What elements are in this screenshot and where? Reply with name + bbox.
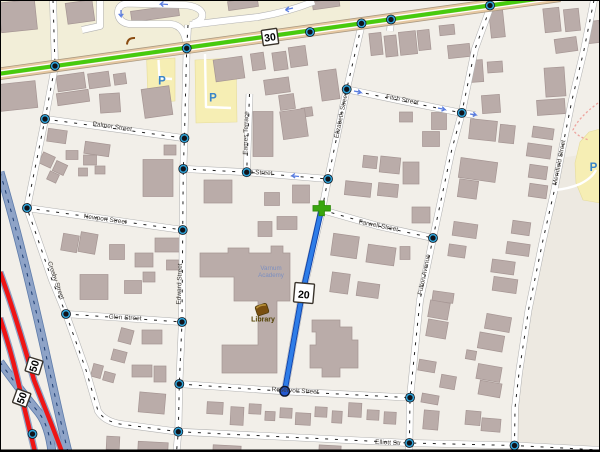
svg-text:P: P	[590, 162, 598, 174]
svg-text:Elliott Str: Elliott Str	[375, 439, 402, 447]
svg-text:Eames Terrace: Eames Terrace	[242, 111, 250, 155]
svg-text:Library: Library	[251, 317, 275, 324]
svg-text:e Street: e Street	[250, 169, 273, 177]
svg-text:20: 20	[297, 289, 310, 302]
svg-text:P: P	[158, 76, 166, 88]
svg-text:Academy: Academy	[258, 272, 285, 279]
svg-text:30: 30	[264, 31, 277, 45]
svg-text:Varnum: Varnum	[260, 265, 281, 272]
svg-text:P: P	[209, 93, 217, 105]
svg-text:Edward Street: Edward Street	[176, 263, 184, 305]
